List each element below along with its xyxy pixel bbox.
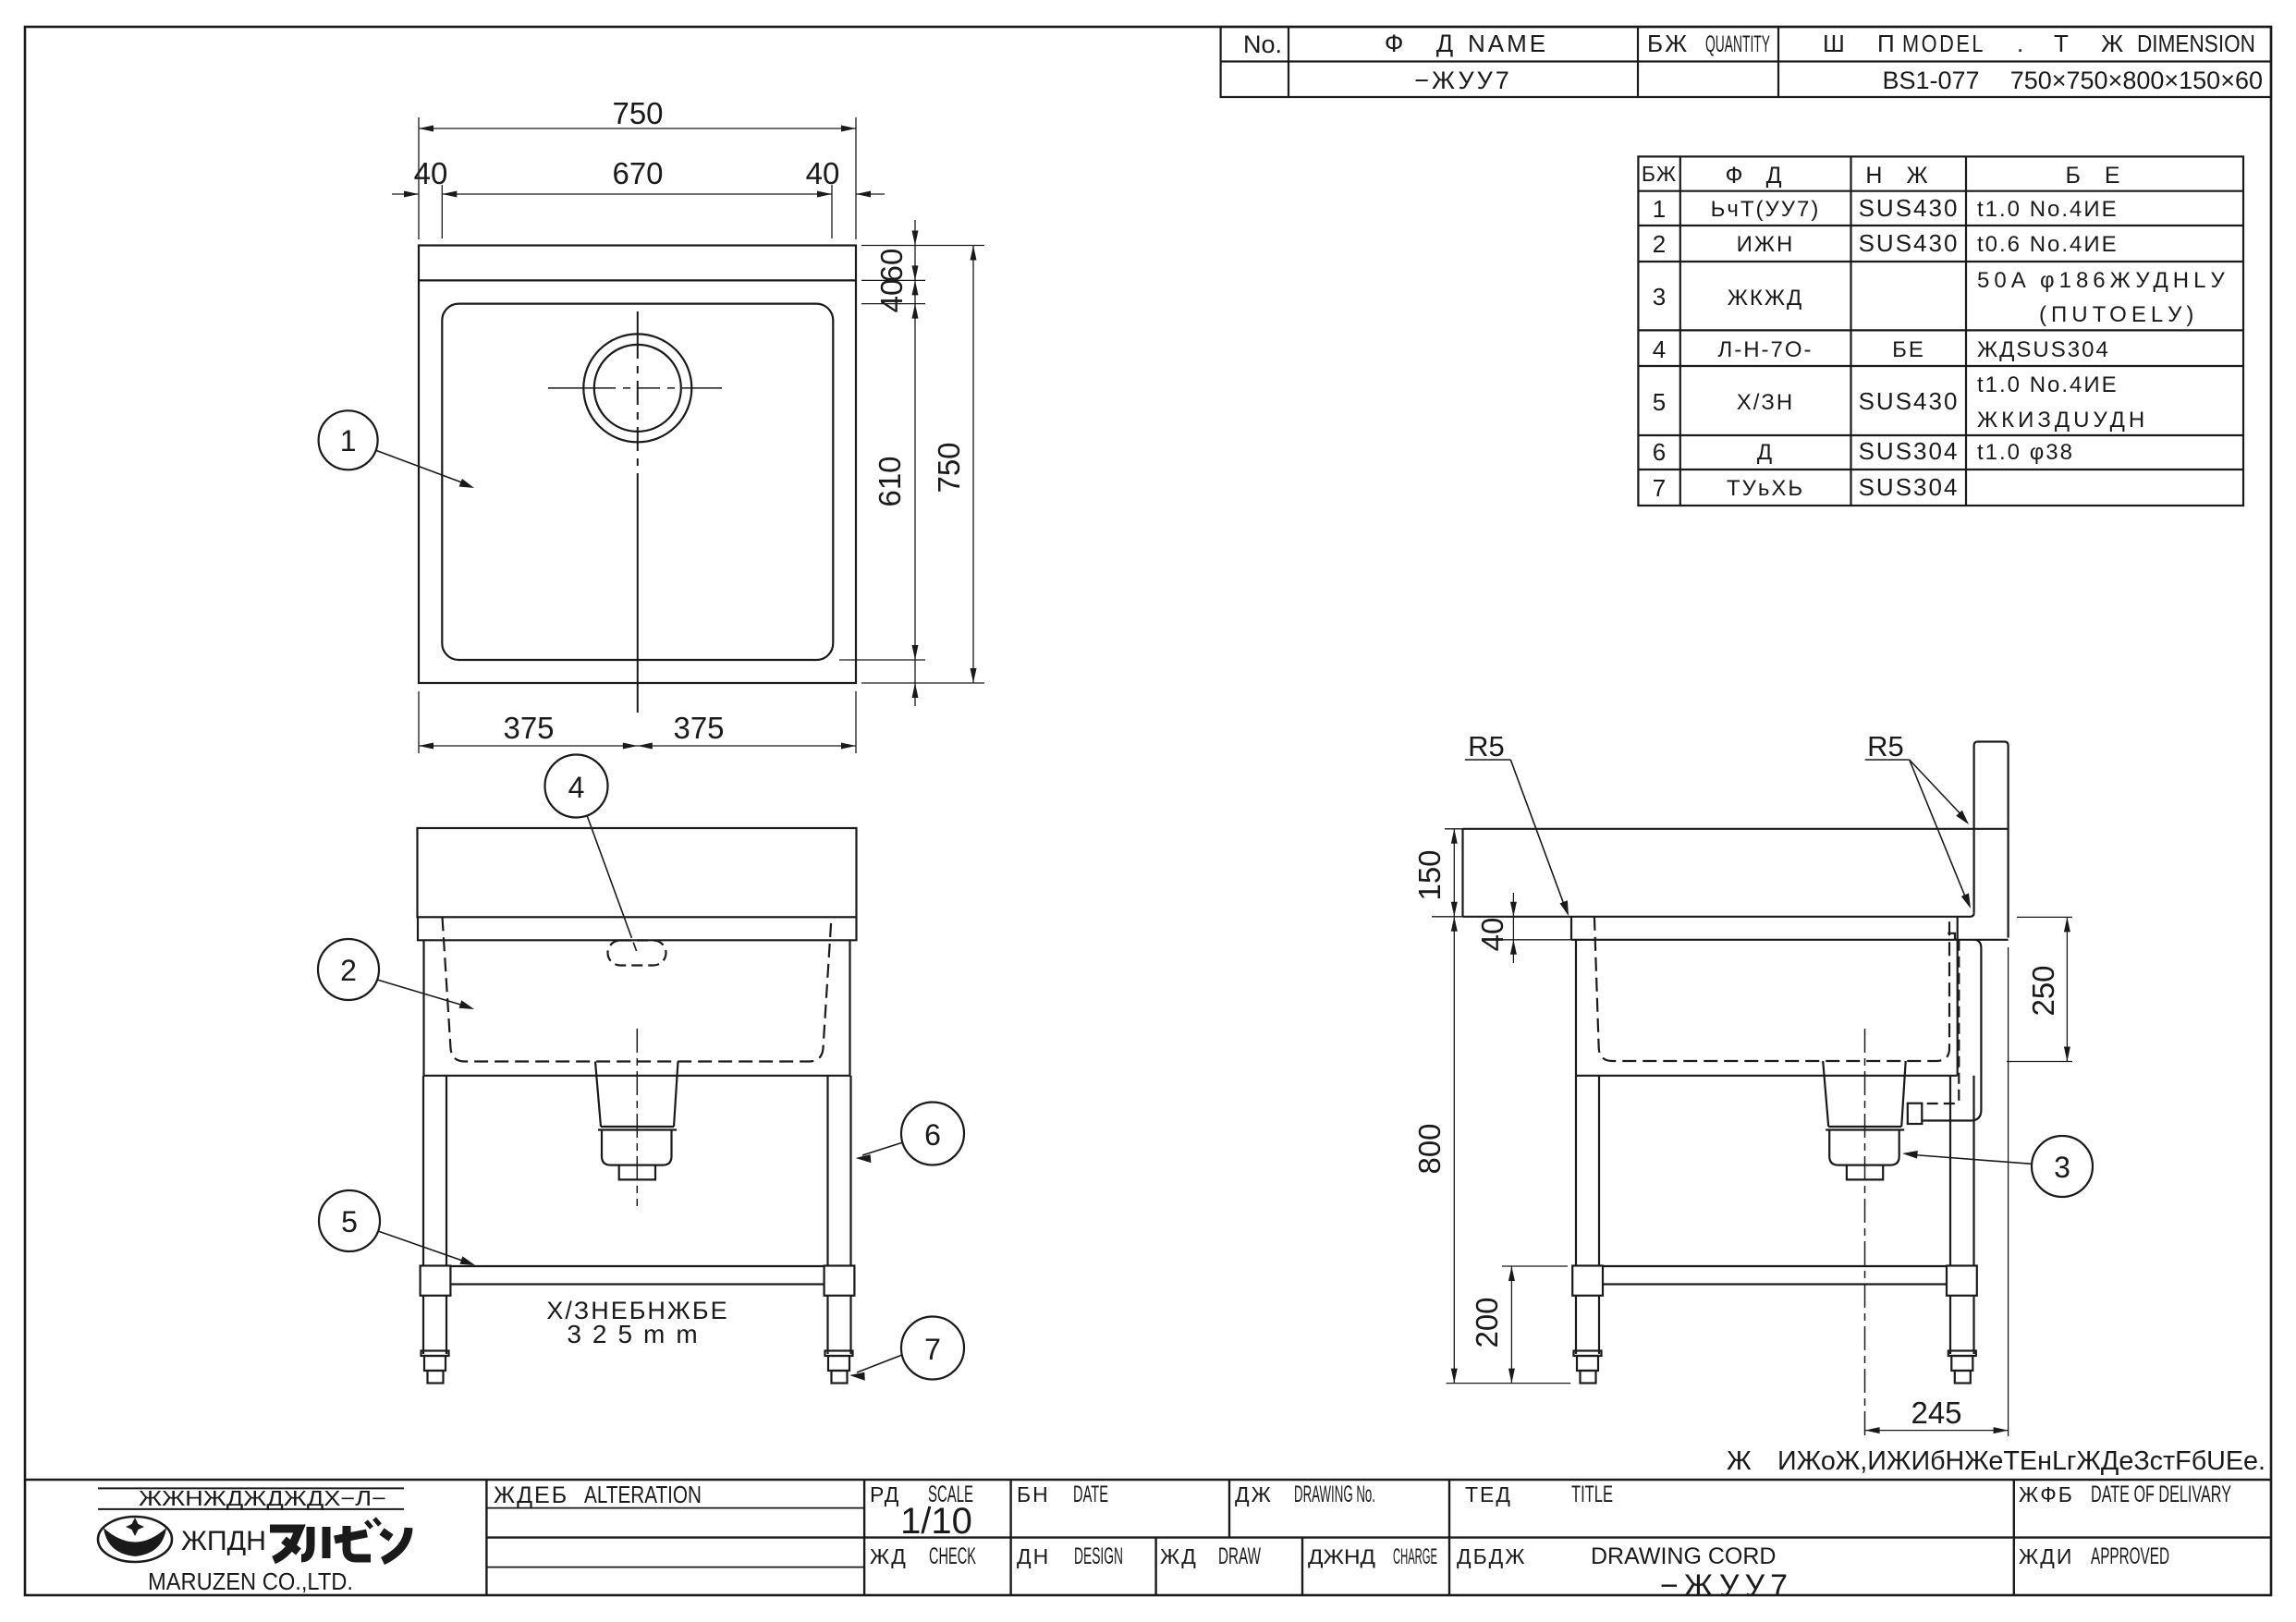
svg-text:750: 750	[932, 442, 966, 493]
svg-text:40: 40	[806, 156, 840, 190]
svg-text:TITLE: TITLE	[1571, 1482, 1613, 1507]
svg-text:375: 375	[673, 711, 724, 745]
svg-text:No.: No.	[1243, 30, 1282, 58]
svg-text:ЖКИЗДUУДН: ЖКИЗДUУДН	[1977, 408, 2148, 433]
svg-text:CHECK: CHECK	[929, 1543, 976, 1569]
svg-text:ALTERATION: ALTERATION	[584, 1481, 702, 1508]
svg-text:DATE: DATE	[1073, 1482, 1108, 1507]
svg-text:Ф Д: Ф Д	[1385, 30, 1466, 57]
svg-text:5: 5	[1653, 388, 1666, 416]
svg-text:.: .	[2017, 30, 2023, 57]
svg-text:SUS430: SUS430	[1859, 229, 1960, 257]
svg-text:БН: БН	[1017, 1482, 1050, 1506]
svg-text:3: 3	[2054, 1151, 2070, 1184]
svg-text:1: 1	[340, 424, 357, 457]
svg-text:ЖД: ЖД	[1160, 1544, 1198, 1568]
svg-text:−ЖУУ7: −ЖУУ7	[1414, 67, 1512, 94]
svg-text:325mm: 325mm	[567, 1320, 708, 1348]
svg-text:ДН: ДН	[1017, 1544, 1050, 1568]
svg-text:БЕ: БЕ	[2065, 163, 2143, 189]
svg-text:1: 1	[1653, 195, 1666, 223]
svg-text:SUS430: SUS430	[1859, 387, 1960, 415]
svg-text:ЖЖНЖДЖДЖДХ−Л−: ЖЖНЖДЖДЖДХ−Л−	[139, 1486, 386, 1510]
svg-text:R5: R5	[1867, 730, 1904, 762]
svg-text:ТУьХЬ: ТУьХЬ	[1727, 476, 1804, 501]
svg-text:ФД: ФД	[1725, 163, 1805, 189]
svg-text:40: 40	[1475, 918, 1509, 952]
svg-text:NAME: NAME	[1468, 30, 1548, 57]
svg-text:Д: Д	[1757, 440, 1774, 465]
svg-text:800: 800	[1412, 1123, 1447, 1174]
svg-text:QUANTITY: QUANTITY	[1705, 31, 1770, 57]
svg-text:ЬчТ(УУ7): ЬчТ(УУ7)	[1711, 197, 1821, 222]
svg-text:ДЖНД: ДЖНД	[1308, 1545, 1375, 1568]
svg-text:Т Ж: Т Ж	[2054, 30, 2136, 57]
svg-text:ЖДSUS304: ЖДSUS304	[1977, 337, 2110, 362]
svg-text:Ш П: Ш П	[1823, 30, 1908, 57]
svg-text:200: 200	[1470, 1297, 1504, 1348]
svg-text:BS1-077: BS1-077	[1882, 67, 1979, 94]
svg-text:ТЕД: ТЕД	[1465, 1482, 1512, 1506]
svg-text:7: 7	[924, 1333, 941, 1366]
svg-text:Х/ЗН: Х/ЗН	[1737, 390, 1795, 415]
svg-text:CHARGE: CHARGE	[1393, 1544, 1437, 1569]
svg-text:6: 6	[924, 1118, 941, 1152]
svg-text:SUS304: SUS304	[1859, 437, 1960, 465]
svg-text:50A φ186ЖУДНLУ: 50A φ186ЖУДНLУ	[1977, 268, 2229, 293]
svg-text:5: 5	[341, 1205, 358, 1238]
svg-text:245: 245	[1911, 1396, 1961, 1430]
svg-text:t1.0 No.4ИЕ: t1.0 No.4ИЕ	[1977, 197, 2119, 222]
svg-text:ДБДЖ: ДБДЖ	[1457, 1544, 1526, 1568]
svg-text:R5: R5	[1468, 730, 1505, 762]
svg-text:−ЖУУ7: −ЖУУ7	[1660, 1568, 1793, 1604]
svg-text:DRAW: DRAW	[1218, 1543, 1261, 1569]
svg-text:3: 3	[1653, 283, 1666, 311]
svg-text:DRAWING No.: DRAWING No.	[1294, 1482, 1375, 1507]
svg-text:750: 750	[612, 96, 663, 130]
svg-text:750×750×800×150×60: 750×750×800×150×60	[2010, 67, 2263, 94]
svg-text:ЖКЖД: ЖКЖД	[1728, 286, 1804, 311]
svg-text:2: 2	[340, 954, 357, 987]
svg-text:MARUZEN CO.,LTD.: MARUZEN CO.,LTD.	[148, 1567, 353, 1595]
svg-text:РД: РД	[870, 1482, 900, 1506]
svg-text:7: 7	[1653, 474, 1666, 502]
svg-text:ЖДИ: ЖДИ	[2019, 1544, 2073, 1568]
svg-text:ЖФБ: ЖФБ	[2019, 1482, 2074, 1506]
svg-text:ЖПДН: ЖПДН	[181, 1526, 266, 1556]
svg-text:ЖД: ЖД	[870, 1544, 908, 1568]
svg-text:375: 375	[503, 711, 554, 745]
svg-text:(ПUТОЕLУ): (ПUТОЕLУ)	[2039, 302, 2198, 327]
svg-text:БЕ: БЕ	[1892, 337, 1925, 362]
svg-text:t1.0 φ38: t1.0 φ38	[1977, 440, 2074, 465]
svg-text:1/10: 1/10	[900, 1501, 972, 1542]
svg-text:НЖ: НЖ	[1865, 163, 1951, 189]
svg-text:4: 4	[1653, 335, 1666, 363]
svg-text:DESIGN: DESIGN	[1074, 1543, 1123, 1569]
svg-text:40: 40	[414, 156, 448, 190]
svg-text:60: 60	[874, 249, 909, 283]
svg-text:SUS304: SUS304	[1859, 473, 1960, 501]
svg-text:БЖ: БЖ	[1647, 30, 1689, 57]
svg-text:670: 670	[612, 156, 663, 190]
svg-text:6: 6	[1653, 438, 1666, 466]
svg-text:БЖ: БЖ	[1642, 162, 1677, 186]
svg-text:SUS430: SUS430	[1859, 194, 1960, 222]
svg-text:610: 610	[873, 456, 907, 506]
svg-text:ДЖ: ДЖ	[1235, 1482, 1273, 1506]
svg-text:150: 150	[1412, 849, 1447, 900]
svg-text:t1.0 No.4ИЕ: t1.0 No.4ИЕ	[1977, 372, 2119, 397]
svg-text:MODEL: MODEL	[1902, 30, 1985, 57]
svg-text:ЖДЕБ: ЖДЕБ	[494, 1482, 568, 1508]
svg-text:Л-Н-7О-: Л-Н-7О-	[1717, 337, 1813, 362]
svg-text:250: 250	[2026, 965, 2060, 1016]
svg-text:DATE OF DELIVARY: DATE OF DELIVARY	[2091, 1482, 2231, 1507]
svg-text:40: 40	[874, 279, 909, 313]
svg-text:Ж: Ж	[1727, 1446, 1752, 1476]
svg-text:ИЖН: ИЖН	[1737, 232, 1795, 257]
svg-text:DRAWING CORD: DRAWING CORD	[1591, 1543, 1776, 1569]
svg-text:2: 2	[1653, 230, 1666, 258]
svg-text:APPROVED: APPROVED	[2091, 1543, 2169, 1569]
svg-text:DIMENSION: DIMENSION	[2137, 30, 2255, 57]
svg-text:4: 4	[568, 771, 585, 804]
svg-text:t0.6 No.4ИЕ: t0.6 No.4ИЕ	[1977, 232, 2119, 257]
svg-text:ИЖоЖ,ИЖИбНЖеТЕнLгЖДеЗстFбUЕе.: ИЖоЖ,ИЖИбНЖеТЕнLгЖДеЗстFбUЕе.	[1777, 1446, 2265, 1476]
